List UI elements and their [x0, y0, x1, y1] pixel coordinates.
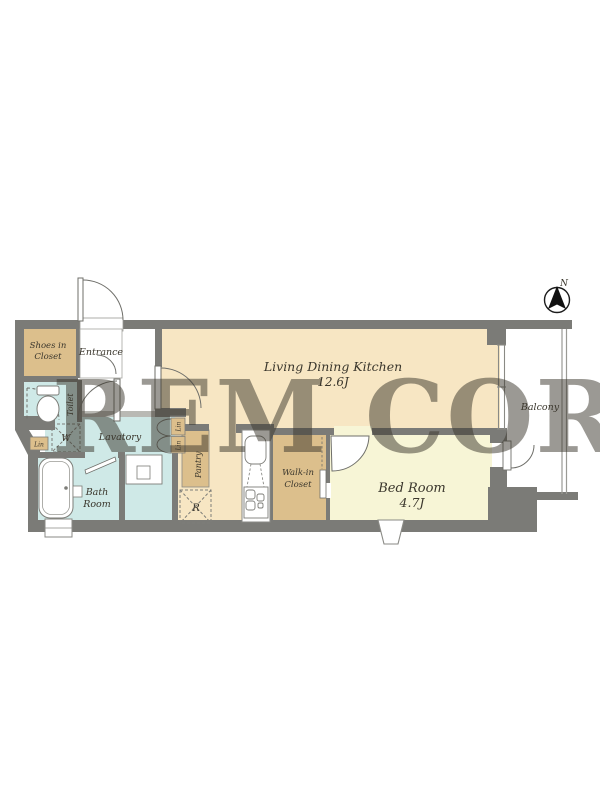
- bedroom-label: Bed Room: [377, 481, 445, 496]
- wic-label-2: Closet: [284, 480, 312, 490]
- entrance-label: Entrance: [78, 347, 124, 358]
- compass-north-label: N: [559, 279, 569, 289]
- bathroom-label-2: Room: [82, 499, 111, 510]
- wall-notch-top-right: [487, 329, 506, 345]
- bathtub-drain: [64, 486, 68, 490]
- shoes-closet-label-1: Shoes in: [30, 341, 67, 351]
- compass-icon: N: [545, 279, 570, 313]
- floor-plan-svg: Living Dining Kitchen 12.6J Bed Room 4.7…: [0, 0, 600, 800]
- entrance-door-arc: [83, 280, 123, 320]
- bathroom-label-1: Bath: [85, 487, 109, 498]
- entrance-door-leaf: [78, 278, 83, 321]
- floor-plan-page: Living Dining Kitchen 12.6J Bed Room 4.7…: [0, 0, 600, 800]
- refrigerator-label: R: [191, 503, 200, 514]
- wall-bottom: [28, 520, 537, 532]
- wall-block-bottom-right: [488, 487, 537, 532]
- wall-left-lower: [28, 450, 38, 524]
- wall-balcony-arm: [537, 492, 578, 500]
- watermark-text: REM CORP: [52, 358, 600, 476]
- wall-left-upper: [15, 320, 24, 428]
- bath-counter: [73, 486, 82, 497]
- bedroom-bay-element: [378, 520, 404, 544]
- linen-left-label: Lin: [33, 442, 44, 449]
- bedroom-size-label: 4.7J: [399, 495, 426, 510]
